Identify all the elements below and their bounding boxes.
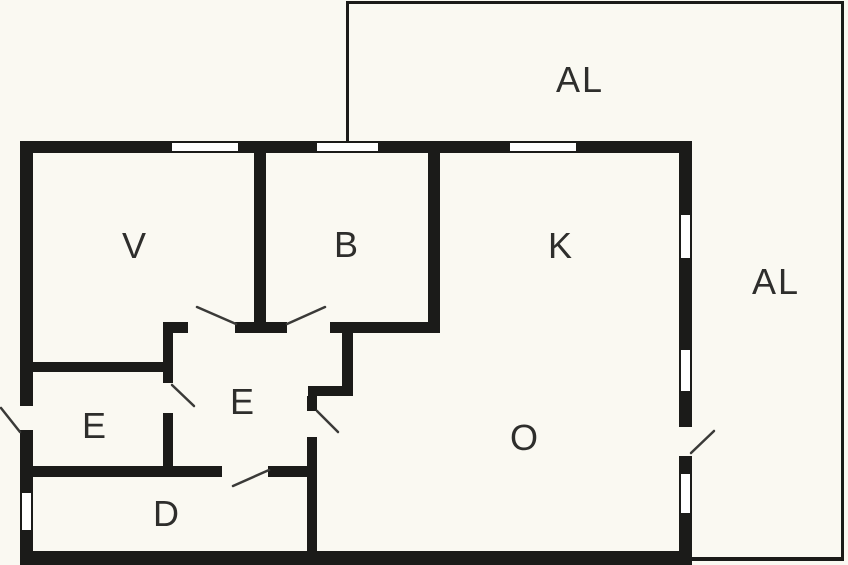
wall-entry-top [20,362,173,372]
door-swing-v [197,307,236,324]
window-v-top [172,141,238,153]
wall-d-top-left [20,466,222,477]
room-label-b: B [334,224,360,266]
door-swing-d [233,470,269,486]
room-label-v: V [122,225,148,267]
room-label-al-right: AL [752,261,800,303]
room-label-o: O [510,417,540,459]
window-k-top [510,141,576,153]
wall-hall-top-center [235,322,287,333]
wall-d-o-divider [307,437,317,551]
door-swing-o-al [691,431,714,453]
wall-v-b-divider [254,153,266,332]
door-swing-b [287,307,325,324]
window-o-right-low [679,474,692,513]
room-label-e-entry: E [82,405,108,447]
window-k-right [679,215,692,258]
door-gap-entry-ext [20,406,33,430]
window-o-right-up [679,350,692,391]
door-gap-o-to-al [679,427,692,456]
al-outline-bottom [692,557,844,561]
door-swing-hall-o [317,411,338,432]
door-swing-ext-left [1,408,20,432]
al-outline-top [346,1,844,4]
wall-b-k-divider [428,153,440,332]
room-label-d: D [153,493,181,535]
wall-d-top-right [268,466,307,477]
door-swing-overlay [0,0,848,565]
room-label-k: K [548,225,574,267]
floor-plan: AL AL V B K O E E D [0,0,848,565]
wall-hall-zigzag-jog [308,386,353,396]
room-label-e-hall: E [230,381,256,423]
outer-wall-bottom [20,551,692,565]
window-b-top [317,141,378,153]
wall-entry-hall-upper [163,333,173,383]
wall-hall-top-right [330,322,440,333]
window-d-left [20,493,33,530]
al-outline-left [346,1,349,141]
wall-hall-top-left [163,322,188,333]
door-swing-entry [172,385,194,406]
al-outline-right [841,1,844,561]
wall-hall-o-upper [307,396,317,411]
room-label-al-top: AL [556,59,604,101]
